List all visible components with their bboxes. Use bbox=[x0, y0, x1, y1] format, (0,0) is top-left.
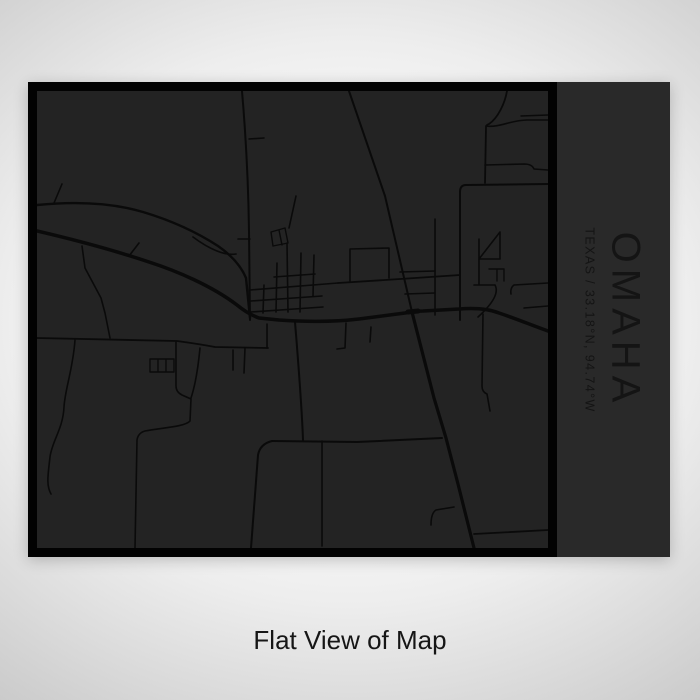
road-path bbox=[82, 246, 110, 338]
road-path bbox=[460, 184, 548, 320]
poster-title: OMAHA bbox=[605, 227, 645, 412]
road-path bbox=[54, 184, 62, 203]
road-path bbox=[412, 312, 474, 548]
road-path bbox=[287, 243, 288, 312]
road-path bbox=[350, 248, 389, 281]
road-path bbox=[135, 342, 191, 548]
road-path bbox=[489, 269, 504, 281]
road-path bbox=[408, 311, 418, 312]
road-path bbox=[244, 348, 245, 373]
caption: Flat View of Map bbox=[0, 625, 700, 656]
title-panel: OMAHA TEXAS / 33.18°N, 94.74°W bbox=[557, 82, 670, 557]
road-path bbox=[405, 293, 435, 294]
road-path bbox=[274, 274, 315, 277]
road-path bbox=[511, 283, 548, 294]
road-path bbox=[191, 348, 200, 398]
road-path bbox=[485, 91, 507, 183]
panel-text-block: OMAHA TEXAS / 33.18°N, 94.74°W bbox=[582, 227, 645, 412]
road-path bbox=[295, 322, 303, 440]
road-path bbox=[431, 507, 454, 525]
road-path bbox=[272, 438, 442, 442]
road-path bbox=[276, 263, 277, 312]
road-path bbox=[485, 164, 548, 170]
road-path bbox=[251, 441, 272, 548]
road-path bbox=[37, 338, 268, 348]
road-path bbox=[479, 232, 500, 259]
road-path bbox=[521, 115, 548, 116]
road-path bbox=[193, 237, 236, 254]
road-path bbox=[482, 314, 490, 411]
map-svg bbox=[37, 91, 548, 548]
road-path bbox=[486, 120, 548, 126]
road-path bbox=[251, 307, 323, 312]
road-path bbox=[48, 340, 75, 494]
road-path bbox=[338, 275, 460, 283]
road-path bbox=[337, 323, 346, 349]
poster-subtitle: TEXAS / 33.18°N, 94.74°W bbox=[582, 227, 596, 412]
road-path bbox=[251, 296, 322, 301]
road-path bbox=[263, 285, 264, 313]
road-path bbox=[150, 359, 174, 372]
road-path bbox=[524, 306, 548, 308]
map-poster: OMAHA TEXAS / 33.18°N, 94.74°W bbox=[28, 82, 670, 557]
map-frame bbox=[28, 82, 557, 557]
road-path bbox=[37, 231, 548, 331]
road-path bbox=[271, 228, 288, 246]
road-path bbox=[400, 271, 435, 272]
road-path bbox=[300, 253, 301, 312]
road-path bbox=[313, 255, 314, 296]
road-path bbox=[370, 327, 371, 342]
road-path bbox=[289, 196, 296, 228]
road-path bbox=[249, 138, 264, 139]
road-path bbox=[129, 243, 139, 256]
road-path bbox=[474, 530, 548, 534]
